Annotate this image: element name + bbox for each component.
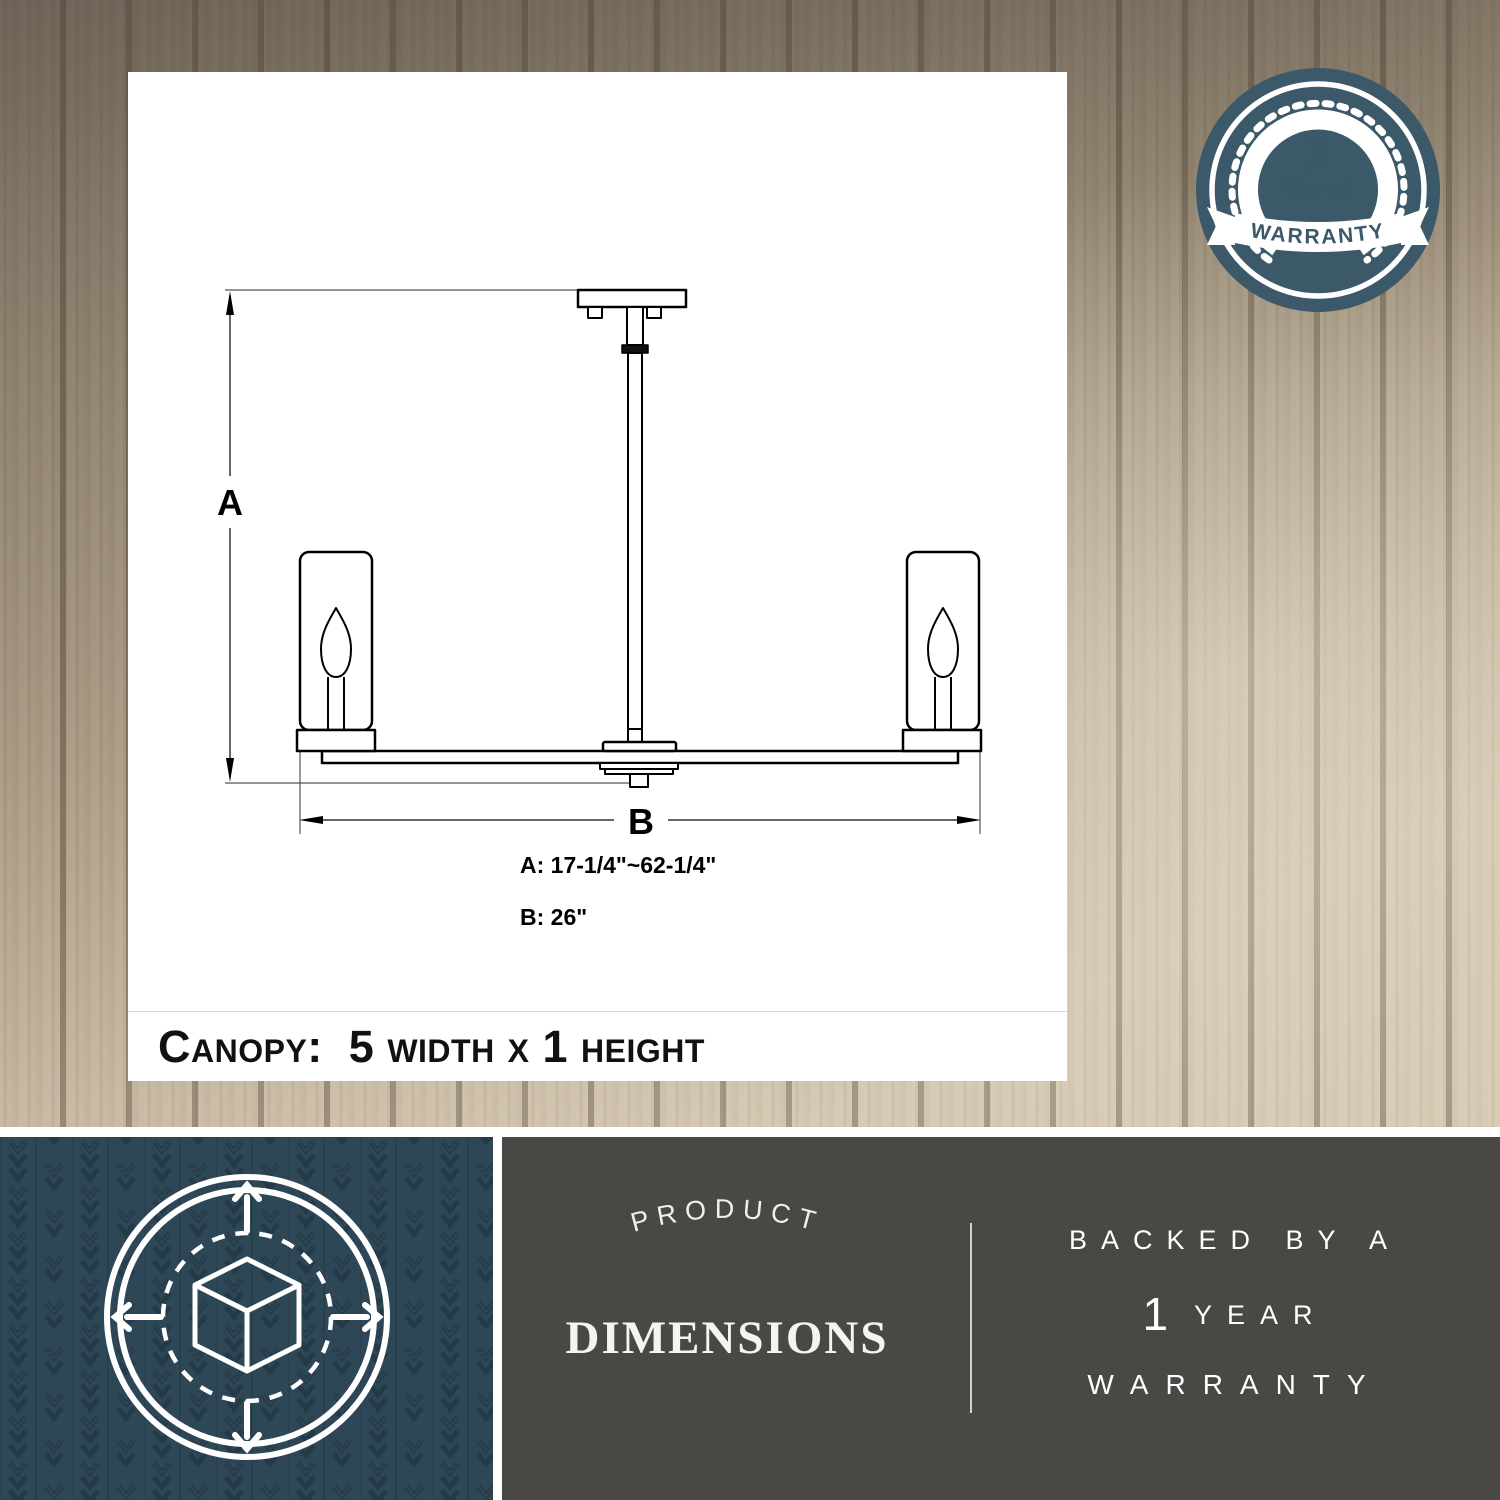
warranty-badge: 1 YEAR WARRANTY (1193, 65, 1443, 315)
chandelier-arm (322, 751, 958, 763)
badge-number: 1 (1302, 119, 1334, 184)
product-panel: A B A: 17-1/4"~62-1/4" B: 26" Canopy: 5 … (128, 72, 1067, 1081)
warranty-line: WARRANTY (1010, 1369, 1460, 1401)
chandelier-dimension-drawing: A B A: 17-1/4"~62-1/4" B: 26" (128, 72, 1067, 1011)
bottom-info-band: PRODUCT DIMENSIONS BACKED BY A 1YEAR WAR… (0, 1127, 1500, 1500)
dim-value-b: B: 26" (520, 904, 587, 930)
ceiling-canopy (578, 290, 686, 307)
finial (630, 774, 648, 787)
text-divider-line (970, 1223, 972, 1413)
warranty-year-label: YEAR (1194, 1300, 1328, 1330)
dim-label-b: B (628, 801, 654, 842)
band-top-border (0, 1127, 1500, 1137)
product-dimensions-infographic: A B A: 17-1/4"~62-1/4" B: 26" Canopy: 5 … (0, 0, 1500, 1500)
dimensions-title: DIMENSIONS (502, 1311, 952, 1365)
badge-year-label: YEAR (1283, 177, 1352, 205)
arched-product-text: PRODUCT (502, 1187, 952, 1287)
dim-value-a: A: 17-1/4"~62-1/4" (520, 852, 716, 878)
chandelier-line-art (297, 290, 981, 787)
downrod (628, 353, 642, 729)
one-year-line: 1YEAR (1010, 1287, 1460, 1341)
left-candle-shade (297, 552, 375, 751)
dimensions-icon-box (0, 1137, 493, 1500)
backed-by-line: BACKED BY A (1010, 1225, 1460, 1256)
warranty-number: 1 (1142, 1288, 1168, 1340)
canopy-note: Canopy: 5 width x 1 height (158, 1021, 705, 1073)
band-vertical-divider (493, 1137, 502, 1500)
right-candle-shade (903, 552, 981, 751)
band-text-box: PRODUCT DIMENSIONS BACKED BY A 1YEAR WAR… (502, 1137, 1500, 1500)
canopy-size-row: Canopy: 5 width x 1 height (128, 1011, 1067, 1081)
svg-text:PRODUCT: PRODUCT (627, 1194, 826, 1238)
dimensions-icon (0, 1137, 493, 1500)
dimension-line-a (226, 291, 234, 782)
cube-measure-icon (107, 1177, 387, 1457)
arched-product-label: PRODUCT (627, 1194, 826, 1238)
dim-label-a: A (217, 482, 243, 523)
